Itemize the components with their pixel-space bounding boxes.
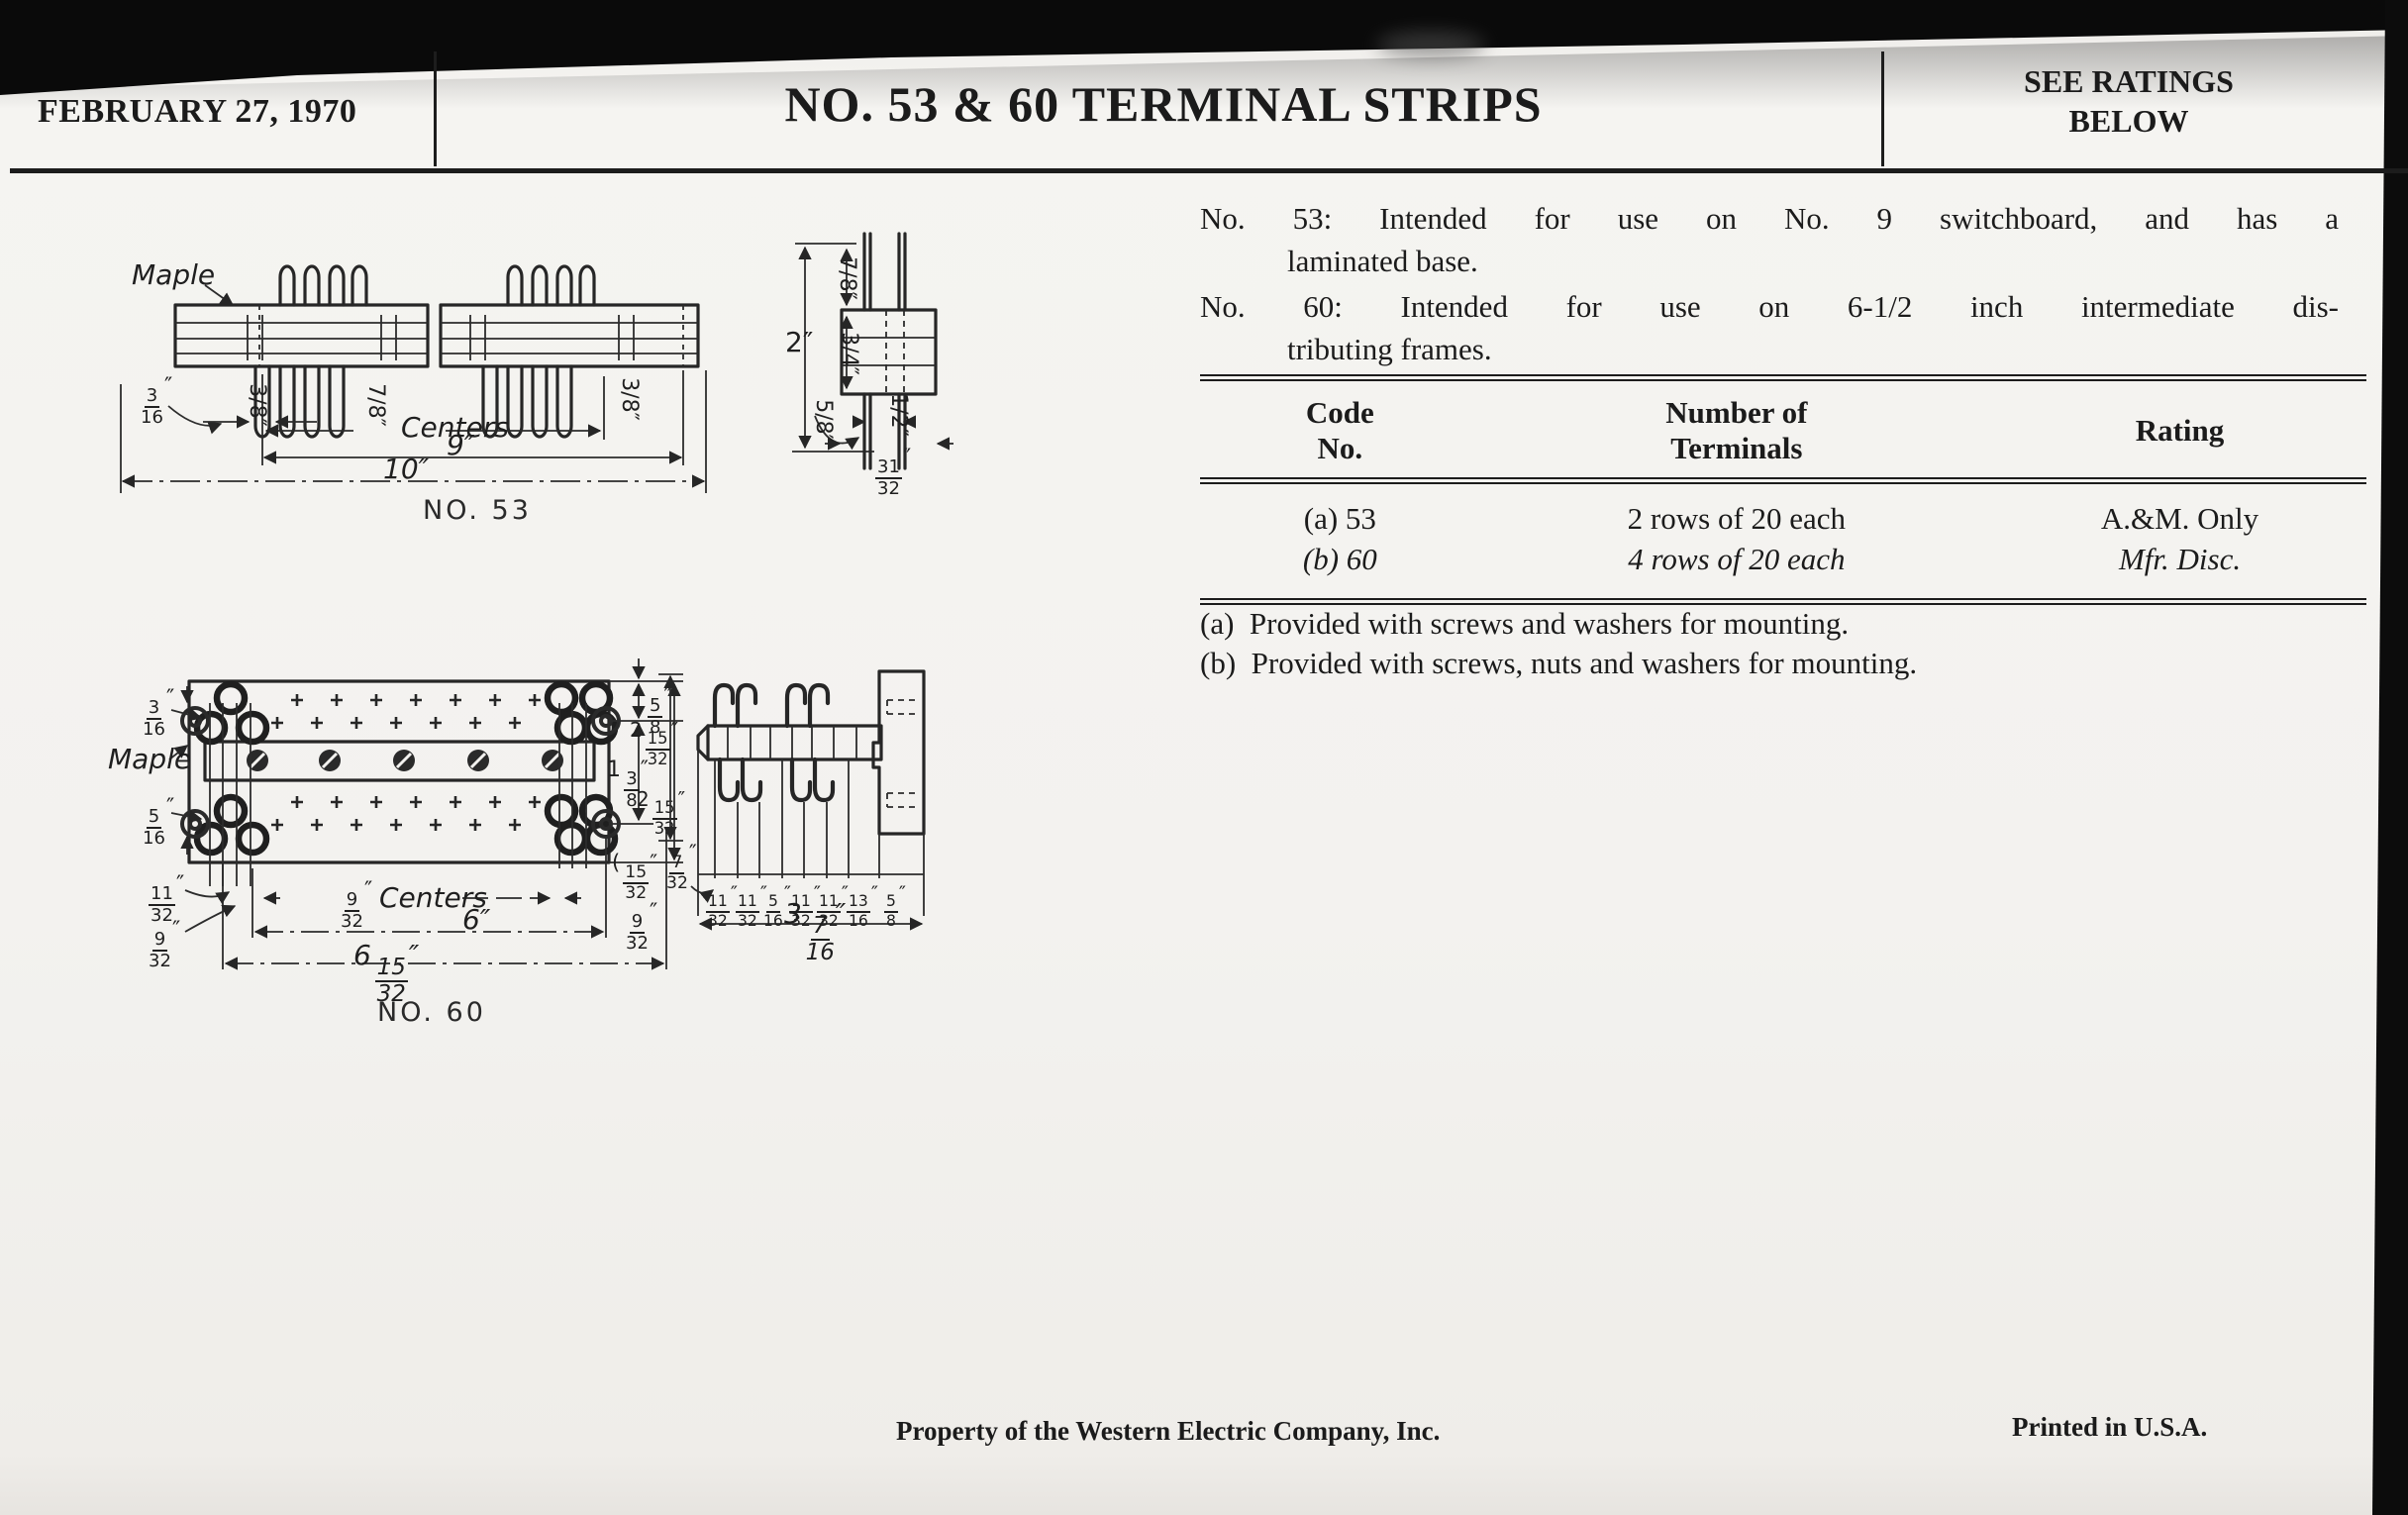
dim-3-8-right: 3/8″ xyxy=(618,377,640,421)
header-rule xyxy=(10,168,2408,173)
ratings-table-header-row: Code No. Number of Terminals Rating xyxy=(1200,378,2366,481)
no60-side-view-drawing: 2 1532″ ( 1532″ 732″ 1132″ 1132″ 516″ 11… xyxy=(614,649,995,985)
issue-date: FEBRUARY 27, 1970 xyxy=(38,93,356,131)
dim-2-15-32: 2 1532″ xyxy=(630,720,678,767)
no53-end-view-drawing: 2″ 7/8″ 3/4″ 5/8″ 1/2″ 3132″ xyxy=(787,226,1000,478)
column-header-rating: Rating xyxy=(1993,378,2366,481)
dim-31-32: 3132″ xyxy=(874,448,911,498)
scanned-spec-sheet: FEBRUARY 27, 1970 NO. 53 & 60 TERMINAL S… xyxy=(0,0,2408,1515)
ratings-note-line2: BELOW xyxy=(1896,101,2361,141)
dim-chain-6: 1316″ xyxy=(846,884,878,929)
property-notice: Property of the Western Electric Company… xyxy=(896,1416,1440,1447)
no60-base xyxy=(189,681,609,862)
column-header-code-no: Code No. xyxy=(1200,378,1480,481)
dim-3-8-left: 3/8″ xyxy=(246,383,267,427)
dim-7-32: 732″ xyxy=(665,843,697,892)
header-divider-right xyxy=(1881,51,1884,166)
cell-terminals: 2 rows of 20 each xyxy=(1480,481,1993,540)
ratings-note: SEE RATINGS BELOW xyxy=(1896,61,2361,141)
no53-description-line1: No. 53: Intended for use on No. 9 switch… xyxy=(1200,201,2339,237)
cell-code: (b) 60 xyxy=(1200,539,1480,601)
cell-rating: A.&M. Only xyxy=(1993,481,2366,540)
dim-3-16: 316″ xyxy=(142,688,174,739)
dim-9-32-left: 932″ xyxy=(148,920,180,970)
dim-3-16: 316″ xyxy=(140,376,172,427)
page-title: NO. 53 & 60 TERMINAL STRIPS xyxy=(451,75,1876,133)
no60-description-line2: tributing frames. xyxy=(1200,332,2408,367)
maple-label: Maple xyxy=(132,261,215,289)
dim-1-2: 1/2″ xyxy=(887,393,909,437)
scan-right-edge xyxy=(2372,0,2408,1515)
no60-description-line1: No. 60: Intended for use on 6-1/2 inch i… xyxy=(1200,289,2339,325)
dim-7-8: 7/8″ xyxy=(836,256,857,300)
ratings-note-line1: SEE RATINGS xyxy=(1896,61,2361,101)
footnote-a: (a) Provided with screws and washers for… xyxy=(1200,606,1849,642)
no53-wood-strip xyxy=(175,305,698,366)
no53-caption: NO. 53 xyxy=(423,495,532,526)
dim-5-16: 516″ xyxy=(142,797,174,848)
dim-9-inch: 9″ xyxy=(447,432,474,459)
table-row: (a) 53 2 rows of 20 each A.&M. Only xyxy=(1200,481,2366,540)
cell-code: (a) 53 xyxy=(1200,481,1480,540)
dim-3-7-16: 3 716″ xyxy=(784,900,846,964)
dim-5-8: 5/8″ xyxy=(812,399,834,443)
dim-chain-1: 1132″ xyxy=(705,884,738,929)
table-row: (b) 60 4 rows of 20 each Mfr. Disc. xyxy=(1200,539,2366,601)
no60-side-clips xyxy=(715,685,833,800)
no60-plan-drawing: 316″ Maple 516″ 58″ 1 38″ 2 1532″ 1132″ … xyxy=(114,649,688,1040)
cell-terminals: 4 rows of 20 each xyxy=(1480,539,1993,601)
column-header-number-of-terminals: Number of Terminals xyxy=(1480,378,1993,481)
no53-description-line2: laminated base. xyxy=(1200,244,2408,279)
printed-in-usa: Printed in U.S.A. xyxy=(2012,1412,2207,1443)
no60-washers xyxy=(182,708,619,837)
no53-elevation-drawing: Maple 316″ 3/8″ 7/8″ Centers 3/8″ 9″ 10″… xyxy=(104,228,748,537)
no53-terminal-clips-top xyxy=(280,266,594,305)
maple-label: Maple xyxy=(108,746,191,773)
no60-screws xyxy=(247,750,563,771)
scan-smudge xyxy=(1376,32,1485,57)
dim-10-inch: 10″ xyxy=(383,455,429,483)
dim-6-inch: 6″ xyxy=(462,906,490,934)
dim-3-4: 3/4″ xyxy=(838,332,859,375)
cell-rating: Mfr. Disc. xyxy=(1993,539,2366,601)
dim-chain-7: 58″ xyxy=(883,884,906,929)
dim-2-inch: 2″ xyxy=(785,329,813,356)
dim-9-32-centers-value: 932″ xyxy=(340,880,372,931)
header-divider-left xyxy=(434,51,437,166)
dim-paren-15-32: ( 1532″ xyxy=(612,853,657,902)
ratings-table: Code No. Number of Terminals Rating (a) … xyxy=(1200,374,2366,605)
footnote-b: (b) Provided with screws, nuts and washe… xyxy=(1200,646,1917,681)
no60-caption: NO. 60 xyxy=(377,997,486,1028)
dim-7-8-centers-value: 7/8″ xyxy=(364,383,386,427)
